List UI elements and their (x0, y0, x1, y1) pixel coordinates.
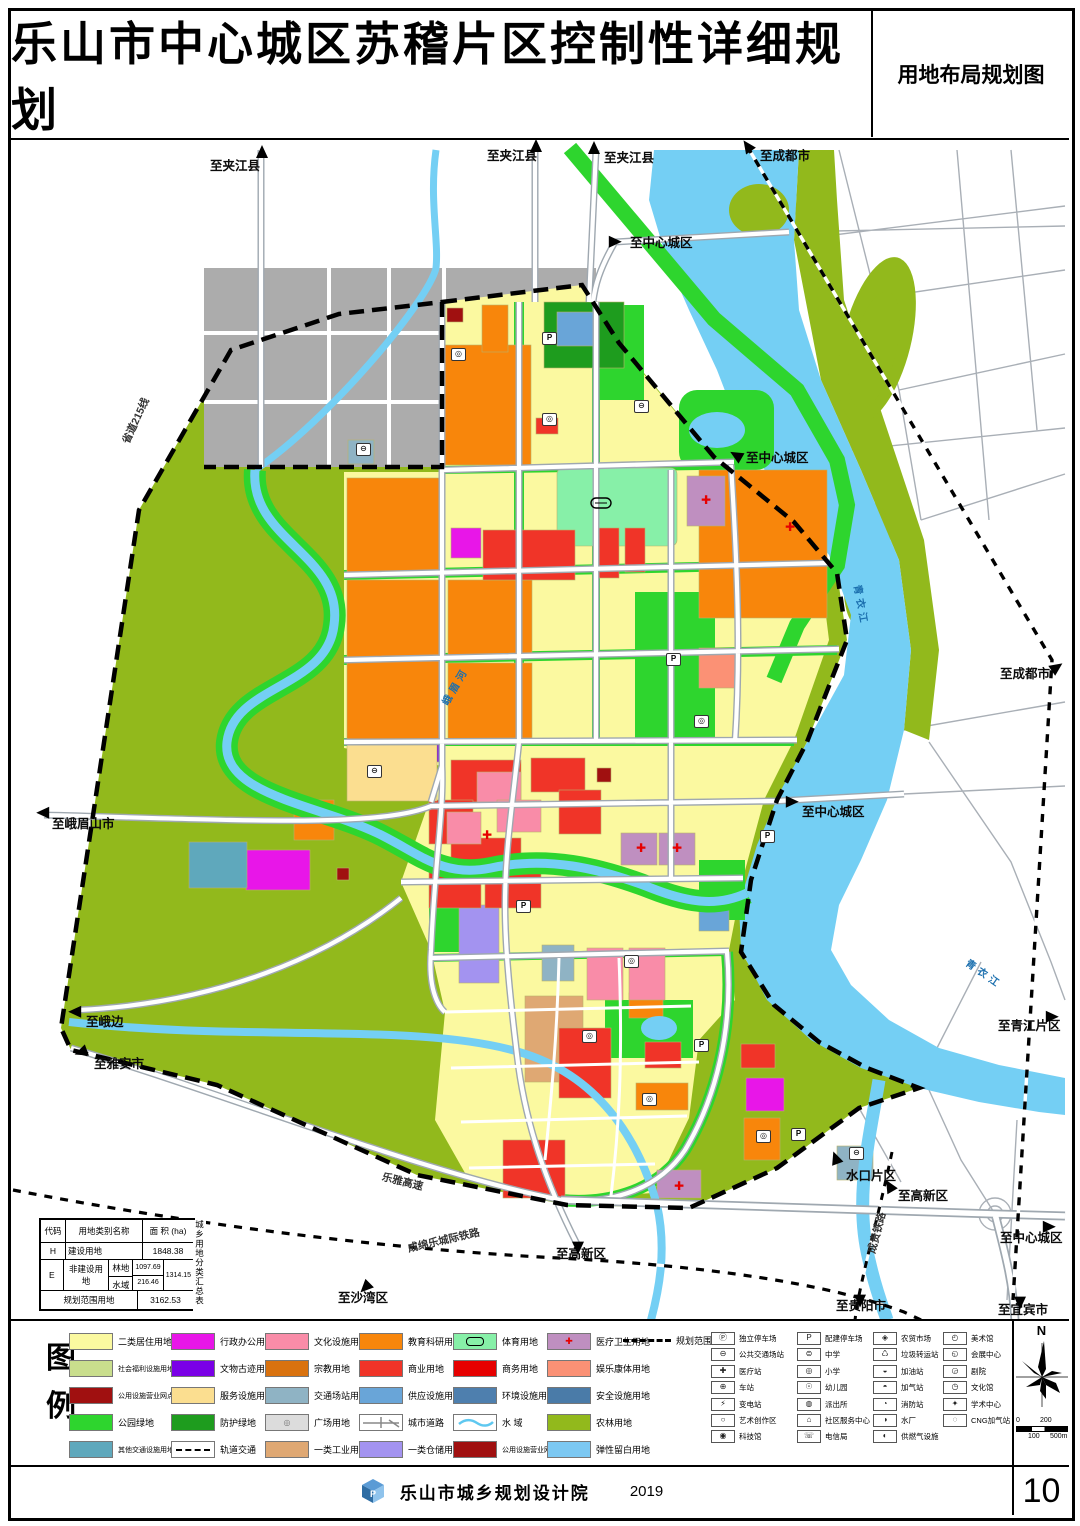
map-label-dir: 至中心城区 (1000, 1232, 1063, 1245)
legend-item-label: 广场用地 (314, 1416, 350, 1429)
legend-facility-item: ◉科技馆 (711, 1430, 762, 1443)
legend-item-label: 防护绿地 (220, 1416, 256, 1429)
parking-icon: P (542, 332, 557, 345)
facility-label: 农贸市场 (901, 1333, 931, 1344)
legend-item: 行政办公用地 (171, 1333, 274, 1350)
direction-arrow-icon (854, 1295, 866, 1308)
t1-col-name: 用地类别名称 (65, 1220, 142, 1242)
facility-glyph-icon: ◉ (711, 1430, 735, 1443)
facility-glyph-icon: P (797, 1332, 821, 1345)
map-label-dir: 至中心城区 (630, 237, 693, 250)
legend-item-label: 水 域 (502, 1416, 523, 1429)
legend-facility-item: ◒加油站 (873, 1365, 924, 1378)
direction-arrow-icon (1014, 1297, 1026, 1310)
direction-arrow-icon (68, 1006, 81, 1018)
legend-item: 农林用地 (547, 1414, 632, 1431)
legend-swatch (547, 1360, 591, 1377)
legend-item: 教育科研用地 (359, 1333, 462, 1350)
direction-arrow-icon (588, 141, 600, 154)
legend-swatch (171, 1414, 215, 1431)
facility-glyph-icon: ☉ (797, 1381, 821, 1394)
legend-swatch (359, 1360, 403, 1377)
legend-item: 弹性留白用地 (547, 1441, 650, 1458)
facility-label: 美术馆 (971, 1333, 994, 1344)
legend-item: 商业用地 (359, 1360, 444, 1377)
legend-item: 防护绿地 (171, 1414, 256, 1431)
facility-label: 会展中心 (971, 1349, 1001, 1360)
legend-panel: 图例 二类居住用地社会福利设施用地公用设施营业网点用地公园绿地其他交通设施用地行… (11, 1321, 1069, 1465)
t1-total-area: 3162.53 (137, 1291, 193, 1309)
t1-e-code: E (41, 1260, 63, 1290)
legend-facility-item: ☏电信局 (797, 1430, 848, 1443)
legend-item: 体育用地 (453, 1333, 538, 1350)
facility-glyph-icon: ◐ (873, 1430, 897, 1443)
facility-glyph-icon: ◌ (943, 1414, 967, 1427)
legend-facility-item: ◐供燃气设施 (873, 1430, 939, 1443)
facility-glyph-icon: ☏ (797, 1430, 821, 1443)
boundary-swatch (623, 1333, 671, 1348)
legend-item: 文物古迹用地 (171, 1360, 274, 1377)
legend-facility-item: ◌CNG加气站 (943, 1414, 1010, 1427)
facility-label: 加气站 (901, 1382, 924, 1393)
legend-swatch (547, 1387, 591, 1404)
facility-icon: ⊖ (634, 400, 649, 413)
direction-arrow-icon (36, 807, 49, 819)
legend-item-label: 城市道路 (408, 1416, 444, 1429)
legend-swatch (547, 1441, 591, 1458)
facility-label: 电信局 (825, 1431, 848, 1442)
facility-icon: ◎ (642, 1093, 657, 1106)
legend-item: 安全设施用地 (547, 1387, 650, 1404)
legend-swatch (69, 1360, 113, 1377)
legend-swatch: ✚ (547, 1333, 591, 1350)
legend-item: 商务用地 (453, 1360, 538, 1377)
legend-swatch (453, 1414, 497, 1431)
map-label-dir: 至中心城区 (802, 806, 865, 819)
facility-label: 水厂 (901, 1415, 916, 1426)
t1-e-area: 1314.15 (163, 1260, 193, 1290)
footer-bar: P 乐山市城乡规划设计院 2019 (11, 1467, 1012, 1515)
legend-item: 宗教用地 (265, 1360, 350, 1377)
parking-icon: P (516, 900, 531, 913)
facility-icon: ⊖ (849, 1147, 864, 1160)
facility-label: 车站 (739, 1382, 754, 1393)
facility-icon: ◎ (542, 413, 557, 426)
t1-col-code: 代码 (41, 1220, 65, 1242)
legend-item-label: 其他交通设施用地 (118, 1445, 174, 1455)
facility-icon: ◎ (694, 715, 709, 728)
institute-logo: P (360, 1478, 386, 1504)
map-label-dir: 至中心城区 (746, 452, 809, 465)
facility-label: 公共交通场站 (739, 1349, 784, 1360)
legend-facility-item: ⊜中学 (797, 1348, 840, 1361)
legend-facility-item: ◶剧院 (943, 1365, 986, 1378)
legend-item: 水 域 (453, 1414, 523, 1431)
parking-icon: P (760, 830, 775, 843)
t1-e-name: 非建设用地 (63, 1260, 109, 1290)
facility-icon: ◎ (451, 348, 466, 361)
facility-glyph-icon: ⊜ (797, 1348, 821, 1361)
legend-swatch (69, 1414, 113, 1431)
legend-facility-item: ♺垃圾转运站 (873, 1348, 939, 1361)
map-label-dir: 至高新区 (898, 1190, 948, 1203)
t1-forest-area: 1097.69 (133, 1260, 162, 1275)
legend-item-label: 商业用地 (408, 1362, 444, 1375)
legend-facility-item: P配建停车场 (797, 1332, 863, 1345)
facility-label: 变电站 (739, 1399, 762, 1410)
map-label-dir: 至夹江县 (604, 152, 654, 165)
legend-swatch (359, 1441, 403, 1458)
legend-item-label: 二类居住用地 (118, 1335, 172, 1348)
facility-glyph-icon: ◒ (873, 1365, 897, 1378)
legend-facility-item: ⊕车站 (711, 1381, 754, 1394)
direction-arrow-icon (572, 1242, 584, 1255)
legend-swatch (453, 1441, 497, 1458)
facility-glyph-icon: ◷ (943, 1381, 967, 1394)
legend-swatch (359, 1387, 403, 1404)
legend-facility-item: ◎小学 (797, 1365, 840, 1378)
legend-facility-item: ⊖公共交通场站 (711, 1348, 784, 1361)
facility-glyph-icon: ◎ (797, 1365, 821, 1378)
legend-item: 娱乐康体用地 (547, 1360, 650, 1377)
facility-glyph-icon: ⊖ (711, 1348, 735, 1361)
facility-label: 学术中心 (971, 1399, 1001, 1410)
map-label-dir: 至雅安市 (94, 1058, 144, 1071)
legend-swatch (69, 1333, 113, 1350)
scale-bar: 0 200 100 500m (1016, 1417, 1068, 1443)
facility-label: 文化馆 (971, 1382, 994, 1393)
direction-arrow-icon (786, 796, 799, 808)
facility-glyph-icon: ◓ (873, 1381, 897, 1394)
facility-label: 幼儿园 (825, 1382, 848, 1393)
facility-icon: ◎ (582, 1030, 597, 1043)
facility-glyph-icon: ⚡ (711, 1398, 735, 1411)
facility-glyph-icon: ✦ (943, 1398, 967, 1411)
legend-swatch (453, 1360, 497, 1377)
legend-facility-item: ⚡变电站 (711, 1398, 762, 1411)
legend-swatch (453, 1387, 497, 1404)
scale-100: 100 (1028, 1433, 1040, 1440)
facility-label: 加油站 (901, 1366, 924, 1377)
hospital-cross-icon: ✚ (701, 494, 711, 506)
facility-label: 艺术创作区 (739, 1415, 777, 1426)
facility-label: 小学 (825, 1366, 840, 1377)
legend-swatch (171, 1333, 215, 1350)
facility-glyph-icon: ◈ (873, 1332, 897, 1345)
legend-item: 社会福利设施用地 (69, 1360, 174, 1377)
parking-icon: P (666, 653, 681, 666)
legend-item: 一类仓储用地 (359, 1441, 462, 1458)
map-type-title: 用地布局规划图 (873, 11, 1069, 137)
legend-swatch (547, 1414, 591, 1431)
legend-item-label: 公园绿地 (118, 1416, 154, 1429)
map-label-dir: 至成都市 (760, 150, 810, 163)
legend-item-label: 宗教用地 (314, 1362, 350, 1375)
facility-label: 医疗站 (739, 1366, 762, 1377)
hospital-cross-icon: ✚ (482, 829, 492, 841)
legend-swatch (171, 1441, 215, 1458)
planning-sheet: 乐山市中心城区苏稽片区控制性详细规划 用地布局规划图 (0, 0, 1080, 1526)
t1-h-code: H (41, 1243, 65, 1259)
facility-label: 配建停车场 (825, 1333, 863, 1344)
legend-item-label: 体育用地 (502, 1335, 538, 1348)
facility-glyph-icon: ✚ (711, 1365, 735, 1378)
facility-glyph-icon: Ⓟ (711, 1332, 735, 1345)
legend-item-label: 弹性留白用地 (596, 1443, 650, 1456)
legend-swatch (359, 1414, 403, 1431)
facility-glyph-icon: ◍ (797, 1398, 821, 1411)
facility-label: 科技馆 (739, 1431, 762, 1442)
legend-facility-item: ⌂社区服务中心 (797, 1414, 870, 1427)
facility-label: 中学 (825, 1349, 840, 1360)
legend-swatch (265, 1441, 309, 1458)
legend-item: 供应设施用地 (359, 1387, 462, 1404)
legend-swatch (69, 1441, 113, 1458)
facility-label: 剧院 (971, 1366, 986, 1377)
facility-glyph-icon: ⌂ (797, 1414, 821, 1427)
legend-item: 一类工业用地 (265, 1441, 368, 1458)
facility-icon: ⊖ (356, 443, 371, 456)
legend-facility-item: ◴美术馆 (943, 1332, 994, 1345)
direction-arrow-icon (1046, 1011, 1059, 1023)
legend-item: 其他交通设施用地 (69, 1441, 174, 1458)
scale-0: 0 (1016, 1417, 1020, 1424)
legend-item-label: 安全设施用地 (596, 1389, 650, 1402)
legend-swatch (265, 1333, 309, 1350)
legend-facility-item: ◷文化馆 (943, 1381, 994, 1394)
t1-forest-label: 林地 (109, 1260, 132, 1276)
legend-facility-item: ◑水厂 (873, 1414, 916, 1427)
facility-label: 垃圾转运站 (901, 1349, 939, 1360)
legend-facility-item: ◈农贸市场 (873, 1332, 931, 1345)
hospital-cross-icon: ✚ (672, 842, 682, 854)
legend-item: 服务设施用地 (171, 1387, 274, 1404)
legend-facility-item: ☉幼儿园 (797, 1381, 848, 1394)
direction-arrow-icon (609, 236, 622, 248)
legend-item-label: 娱乐康体用地 (596, 1362, 650, 1375)
legend-item: 交通场站用地 (265, 1387, 368, 1404)
year: 2019 (630, 1483, 663, 1500)
map-label-dir: 至峨眉山市 (52, 818, 115, 831)
facility-glyph-icon: ◶ (943, 1365, 967, 1378)
legend-item: ◎广场用地 (265, 1414, 350, 1431)
map-label-dir: 至夹江县 (210, 160, 260, 173)
t1-col-area: 面 积 (ha) (142, 1220, 193, 1242)
scale-200: 200 (1040, 1417, 1052, 1424)
legend-swatch (171, 1387, 215, 1404)
legend-item: 环境设施用地 (453, 1387, 556, 1404)
legend-item: 城市道路 (359, 1414, 444, 1431)
facility-glyph-icon: ○ (711, 1414, 735, 1427)
facility-label: 社区服务中心 (825, 1415, 870, 1426)
legend-item-label: 农林用地 (596, 1416, 632, 1429)
facility-icon: ◎ (756, 1130, 771, 1143)
institute-name: 乐山市城乡规划设计院 (400, 1479, 590, 1504)
direction-arrow-icon (1043, 1221, 1056, 1233)
legend-swatch (359, 1333, 403, 1350)
parking-icon: P (791, 1128, 806, 1141)
page-title: 乐山市中心城区苏稽片区控制性详细规划 (11, 11, 870, 137)
legend-item: 二类居住用地 (69, 1333, 172, 1350)
legend-item-label: 社会福利设施用地 (118, 1364, 174, 1374)
legend-facility-item: ◍派出所 (797, 1398, 848, 1411)
legend-facility-item: Ⓟ独立停车场 (711, 1332, 777, 1345)
area-summary-table: 代码 用地类别名称 面 积 (ha) H 建设用地 1848.38 E 非建设用… (39, 1218, 195, 1311)
legend-swatch (171, 1360, 215, 1377)
legend-facility-item: ◵会展中心 (943, 1348, 1001, 1361)
legend-item-boundary: 规划范围线 (623, 1333, 721, 1348)
legend-facility-item: ○艺术创作区 (711, 1414, 777, 1427)
legend-facility-item: ◓加气站 (873, 1381, 924, 1394)
legend-swatch (69, 1387, 113, 1404)
facility-glyph-icon: ◔ (873, 1398, 897, 1411)
hospital-cross-icon: ✚ (785, 521, 795, 533)
landuse-map (11, 140, 1069, 1320)
t1-side-title: 城乡用地分类汇总表 (193, 1220, 206, 1312)
hospital-cross-icon: ✚ (674, 1180, 684, 1192)
facility-label: 供燃气设施 (901, 1431, 939, 1442)
parking-icon: P (694, 1039, 709, 1052)
facility-label: CNG加气站 (971, 1415, 1010, 1426)
legend-item-label: 轨道交通 (220, 1443, 256, 1456)
t1-h-name: 建设用地 (65, 1243, 142, 1259)
t1-h-area: 1848.38 (142, 1243, 193, 1259)
legend-swatch: ◎ (265, 1414, 309, 1431)
svg-text:P: P (370, 1489, 376, 1499)
scale-500m: 500m (1050, 1433, 1068, 1440)
legend-swatch (265, 1360, 309, 1377)
legend-swatch (265, 1387, 309, 1404)
direction-arrow-icon (256, 145, 268, 158)
facility-glyph-icon: ◑ (873, 1414, 897, 1427)
facility-glyph-icon: ⊕ (711, 1381, 735, 1394)
legend-item: 公园绿地 (69, 1414, 154, 1431)
legend-facility-item: ◔消防站 (873, 1398, 924, 1411)
facility-icon: ⊖ (367, 765, 382, 778)
legend-swatch (453, 1333, 497, 1350)
facility-icon: ◎ (624, 955, 639, 968)
direction-arrow-icon (530, 140, 542, 152)
facility-label: 派出所 (825, 1399, 848, 1410)
map-canvas[interactable]: 至夹江县至夹江县至夹江县至成都市至中心城区至中心城区至成都市至中心城区至青江片区… (11, 140, 1069, 1320)
legend-item-label: 商务用地 (502, 1362, 538, 1375)
map-label-dir: 至成都市 (1000, 668, 1050, 681)
facility-label: 独立停车场 (739, 1333, 777, 1344)
compass-panel: N 0 200 100 500m (1014, 1321, 1069, 1465)
facility-glyph-icon: ♺ (873, 1348, 897, 1361)
facility-glyph-icon: ◵ (943, 1348, 967, 1361)
map-label-dir: 至峨边 (86, 1016, 124, 1029)
legend-item: 文化设施用地 (265, 1333, 368, 1350)
page-number: 10 (1014, 1467, 1069, 1515)
legend-facility-item: ✦学术中心 (943, 1398, 1001, 1411)
facility-glyph-icon: ◴ (943, 1332, 967, 1345)
north-arrow-icon (1014, 1335, 1069, 1415)
legend-item: 轨道交通 (171, 1441, 256, 1458)
t1-total-label: 规划范围用地 (41, 1291, 137, 1309)
hospital-cross-icon: ✚ (636, 842, 646, 854)
facility-label: 消防站 (901, 1399, 924, 1410)
legend-facility-item: ✚医疗站 (711, 1365, 762, 1378)
t1-water-area: 216.46 (133, 1275, 162, 1291)
